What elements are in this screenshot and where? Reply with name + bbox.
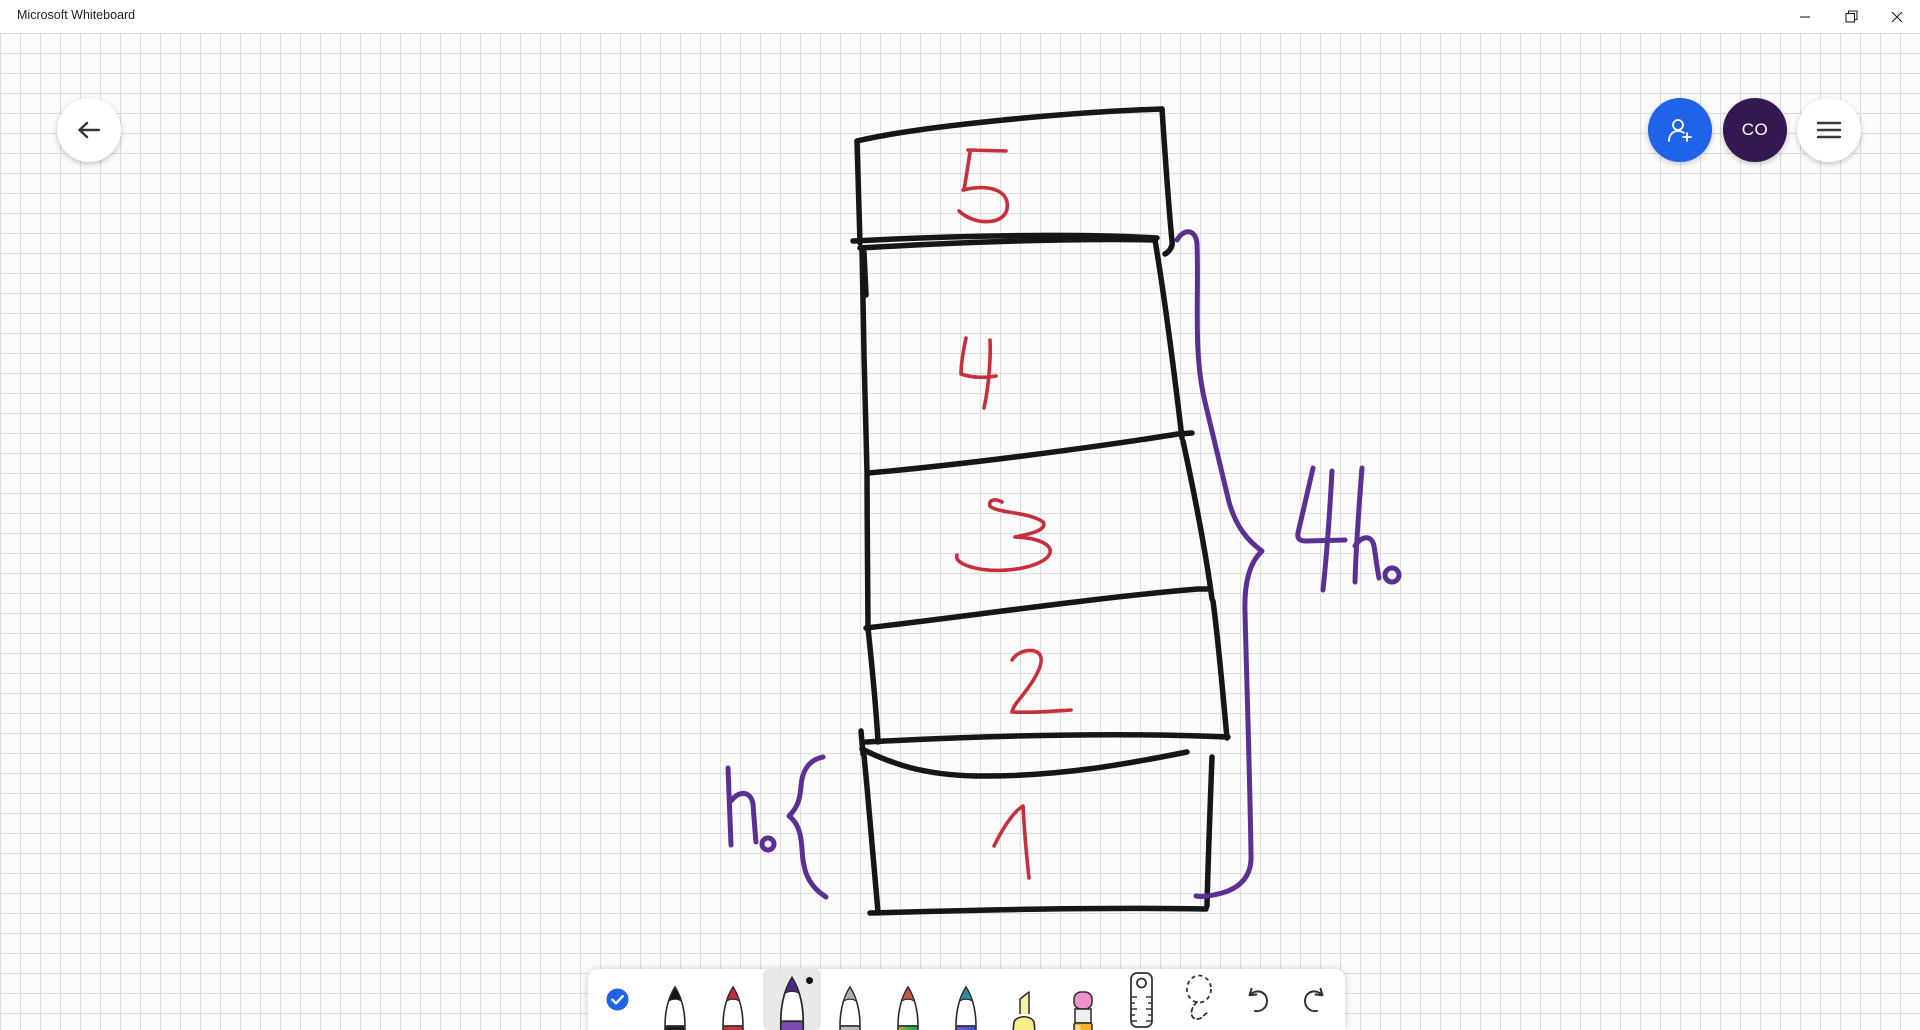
redo-icon xyxy=(1299,984,1331,1016)
tool-ruler[interactable] xyxy=(1112,969,1170,1030)
silver-pen-icon xyxy=(832,982,868,1030)
user-avatar[interactable]: CO xyxy=(1723,98,1787,162)
highlighter-icon xyxy=(1006,982,1042,1030)
red-pen-icon xyxy=(715,982,751,1030)
tool-pen-silver[interactable] xyxy=(821,969,879,1030)
close-button[interactable] xyxy=(1874,0,1920,33)
minimize-button[interactable] xyxy=(1782,0,1828,33)
rainbow-pen-icon xyxy=(890,982,926,1030)
tool-pen-purple-selected[interactable] xyxy=(763,969,821,1030)
pen-toolbar xyxy=(588,969,1345,1030)
purple-pen-icon xyxy=(771,972,811,1030)
back-button[interactable] xyxy=(57,98,121,162)
minimize-icon xyxy=(1799,11,1811,23)
lasso-icon xyxy=(1178,972,1220,1028)
restore-button[interactable] xyxy=(1828,0,1874,33)
ruler-icon xyxy=(1121,971,1161,1029)
black-pen-icon xyxy=(657,982,693,1030)
window-controls xyxy=(1782,0,1920,33)
checkmark-icon xyxy=(606,988,629,1011)
restore-icon xyxy=(1845,10,1858,23)
eraser-icon xyxy=(1065,982,1101,1030)
galaxy-pen-icon xyxy=(948,982,984,1030)
tool-pen-black[interactable] xyxy=(646,969,704,1030)
tool-pen-rainbow[interactable] xyxy=(879,969,937,1030)
person-add-icon xyxy=(1664,114,1696,146)
check-button[interactable] xyxy=(588,969,646,1030)
tool-pen-red[interactable] xyxy=(704,969,762,1030)
hamburger-icon xyxy=(1816,120,1842,140)
close-icon xyxy=(1891,11,1903,23)
back-arrow-icon xyxy=(74,115,104,145)
redo-button[interactable] xyxy=(1286,969,1344,1030)
menu-button[interactable] xyxy=(1797,98,1861,162)
avatar-initials: CO xyxy=(1742,120,1769,140)
tool-eraser[interactable] xyxy=(1054,969,1112,1030)
titlebar: Microsoft Whiteboard xyxy=(0,0,1920,33)
tool-highlighter[interactable] xyxy=(995,969,1053,1030)
undo-icon xyxy=(1241,984,1273,1016)
invite-button[interactable] xyxy=(1648,98,1712,162)
tool-lasso-select[interactable] xyxy=(1170,969,1228,1030)
undo-button[interactable] xyxy=(1228,969,1286,1030)
tool-pen-galaxy[interactable] xyxy=(937,969,995,1030)
window-title: Microsoft Whiteboard xyxy=(17,8,135,22)
whiteboard-canvas[interactable] xyxy=(0,33,1920,1030)
